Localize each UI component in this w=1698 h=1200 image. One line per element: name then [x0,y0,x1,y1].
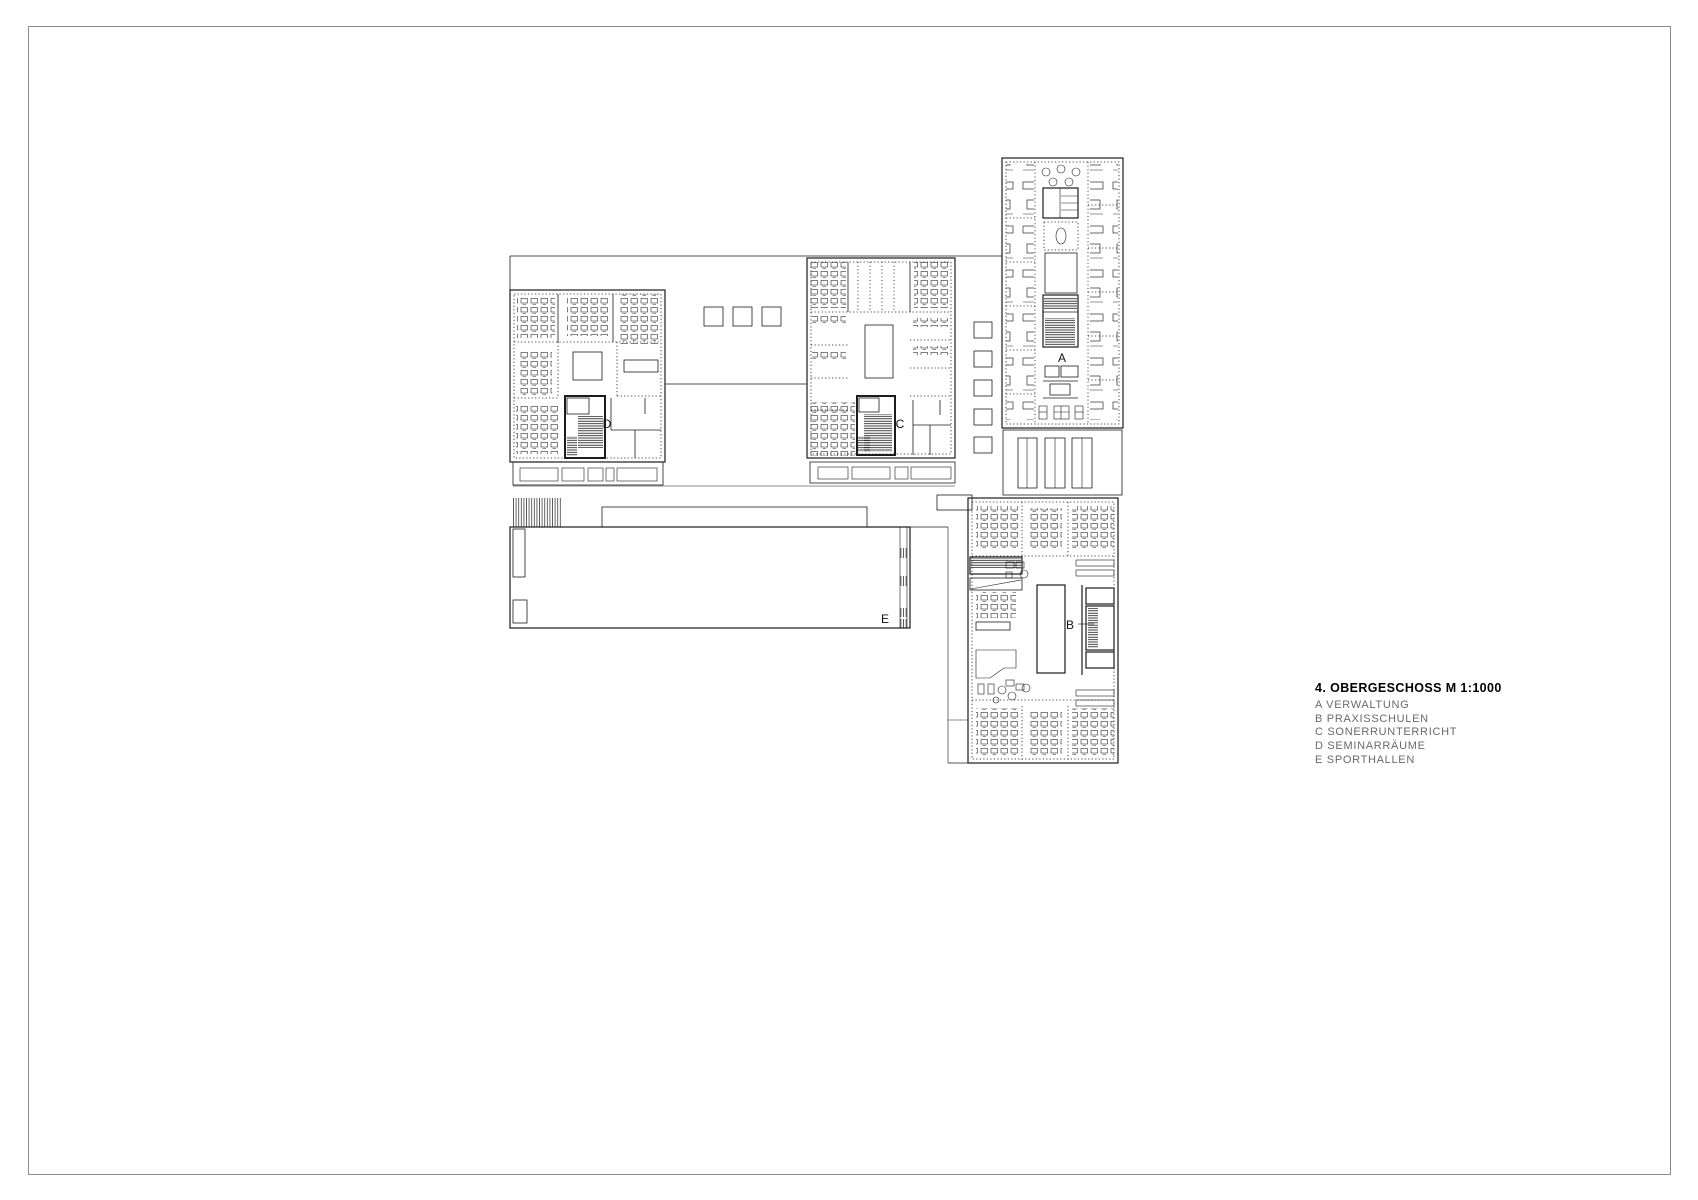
building-c-sonderunterricht: C [807,258,955,483]
link-corridor-east [937,495,972,763]
legend-item-b: B PRAXISSCHULEN [1315,713,1575,727]
wc-rooms-a [1043,366,1078,398]
room-label-a: A [1058,351,1066,365]
room-label-b: B [1066,618,1074,632]
core-b-east [1076,560,1114,706]
stair-core-a [1043,295,1078,347]
room-label-c: C [896,417,905,431]
legend-item-c: C SONERRUNTERRICHT [1315,726,1575,740]
arcade-d [513,462,663,485]
round-tables-a [1042,165,1080,186]
sports-hall-roof [510,527,910,628]
meeting-room-a [1044,222,1078,250]
stair-ramp-e [512,498,562,527]
rooms-c-southeast [913,400,951,455]
legend-item-a: A VERWALTUNG [1315,699,1575,713]
offices-a-east [1090,164,1118,420]
stair-a-north [1043,188,1078,218]
building-e-sporthallen: E [510,486,972,763]
void-a [1045,253,1077,293]
legend-item-d: D SEMINARRÄUME [1315,740,1575,754]
stair-core-d [565,396,605,458]
skylight [704,307,723,326]
fixtures-a [1039,406,1083,419]
legend-item-e: E SPORTHALLEN [1315,754,1575,768]
arcade-c [810,462,955,483]
connector-shafts [974,322,992,453]
clerestory-e [602,507,867,527]
legend-title: 4. OBERGESCHOSS M 1:1000 [1315,681,1575,695]
skylight [762,307,781,326]
floor-plan-drawing: D [0,0,1698,1200]
room-label-d: D [603,417,612,431]
offices-a-west [1006,164,1034,420]
void-b [1037,585,1065,673]
building-a-verwaltung: A [1002,158,1123,428]
building-d-seminarraeume: D [510,290,665,485]
courtyard-c [865,325,893,378]
furniture-b-west [976,592,1016,703]
rooms-d-southeast [611,398,661,458]
furniture-b-center [1006,562,1030,692]
room-label-e: E [881,612,889,626]
drawing-sheet: D [0,0,1698,1200]
stair-core-c [857,396,895,455]
courtyard-d [573,352,602,380]
skylight [733,307,752,326]
rooflight-bars [1003,430,1122,495]
building-b-praxisschulen: B [968,498,1118,763]
legend: 4. OBERGESCHOSS M 1:1000 A VERWALTUNG B … [1315,681,1575,768]
